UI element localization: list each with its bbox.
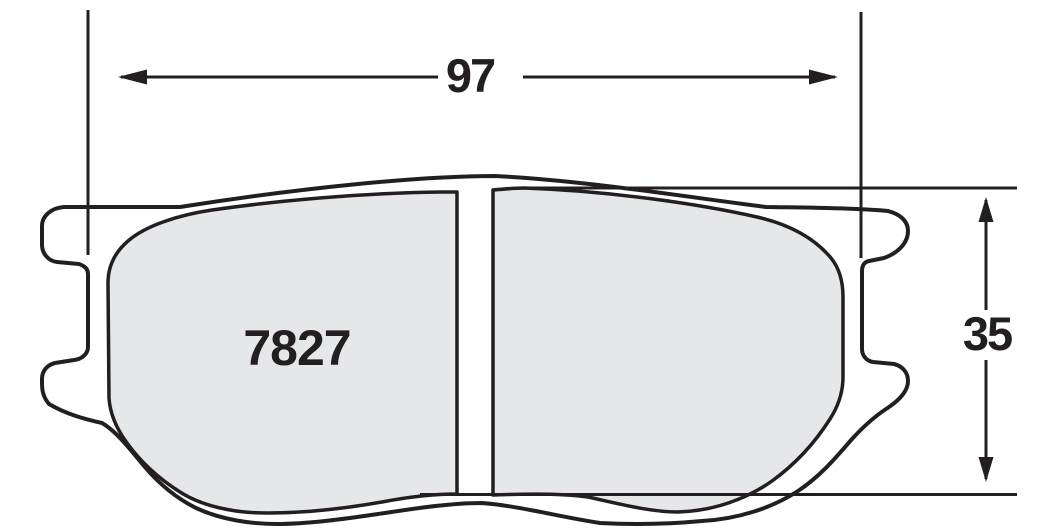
width-dimension-label: 97 bbox=[446, 49, 495, 102]
arrow-right-icon bbox=[809, 70, 838, 85]
arrow-up-icon bbox=[979, 197, 994, 222]
friction-pad-right bbox=[493, 188, 843, 512]
arrow-left-icon bbox=[118, 70, 147, 85]
drawing-canvas: 97 35 7827 bbox=[0, 0, 1044, 528]
part-number-label: 7827 bbox=[243, 320, 350, 376]
arrow-down-icon bbox=[979, 457, 994, 482]
height-dimension-label: 35 bbox=[963, 307, 1012, 360]
brake-pad-drawing: 97 35 7827 bbox=[0, 0, 1044, 528]
